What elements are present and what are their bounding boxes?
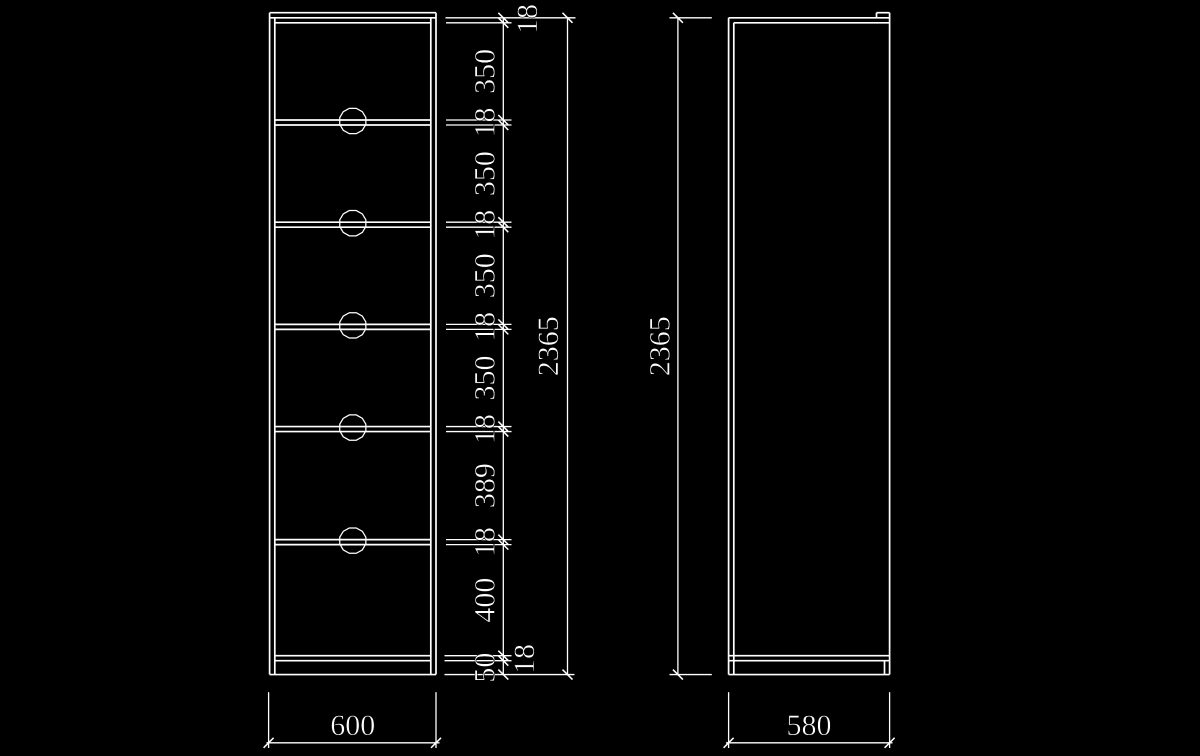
svg-text:18: 18 [508,644,541,674]
svg-text:18: 18 [469,210,502,240]
svg-text:2365: 2365 [643,316,676,376]
svg-text:389: 389 [469,463,502,508]
svg-text:350: 350 [469,356,502,401]
svg-text:18: 18 [469,108,502,138]
svg-text:50: 50 [469,653,502,683]
svg-text:580: 580 [787,709,832,742]
svg-text:18: 18 [469,414,502,444]
svg-text:18: 18 [469,527,502,557]
svg-text:350: 350 [469,253,502,298]
svg-text:400: 400 [469,578,502,623]
svg-text:350: 350 [469,49,502,94]
svg-text:2365: 2365 [532,316,565,376]
svg-text:18: 18 [469,312,502,342]
svg-text:600: 600 [330,709,375,742]
svg-text:18: 18 [511,4,544,34]
svg-text:350: 350 [469,151,502,196]
